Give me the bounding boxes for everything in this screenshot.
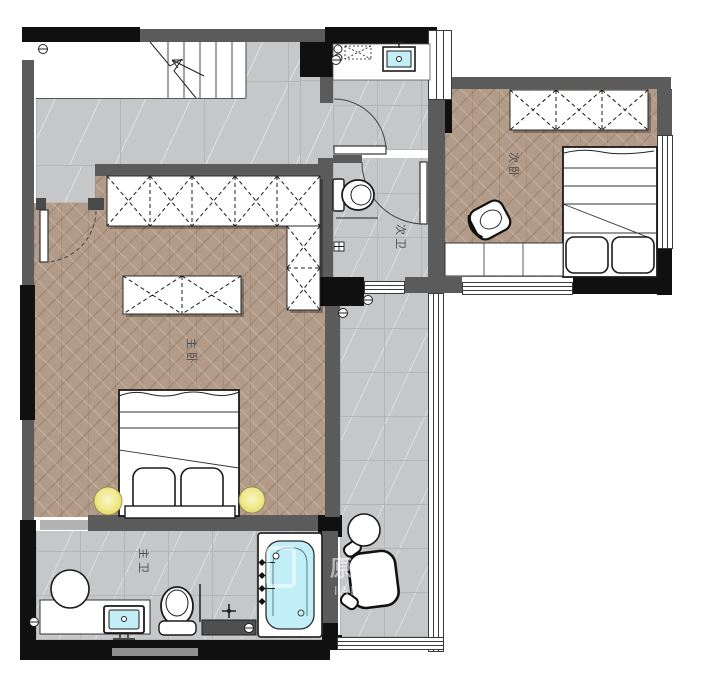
desk-cabinet	[445, 243, 563, 276]
single-bed	[563, 147, 657, 277]
laundry-door	[334, 99, 386, 154]
island-wardrobe	[123, 276, 244, 317]
floor-drain-symbol	[334, 242, 344, 251]
floor-plan: 主卧 主卫 次卧 次卫 原创 IALS	[0, 0, 720, 689]
desk-chair	[465, 197, 514, 243]
watermark-text-cn: 原创	[330, 556, 374, 581]
side-table	[348, 514, 380, 546]
shower-mixer	[200, 584, 256, 635]
nightstand-lamp	[94, 487, 122, 515]
staircase	[150, 42, 246, 98]
room-label-second-bedroom: 次卧	[507, 152, 521, 180]
watermark-text-en: IALS	[334, 583, 370, 598]
room-label-master-bedroom: 主卧	[185, 338, 198, 366]
room-label-master-bathroom: 主卫	[137, 548, 150, 576]
toilet	[159, 587, 196, 635]
master-bedroom-door	[40, 210, 96, 262]
double-bed	[119, 390, 239, 518]
wardrobe	[287, 226, 323, 313]
laundry-counter	[333, 43, 430, 80]
fixtures-overlay: 主卧 主卫 次卧 次卫 原创 IALS	[0, 0, 720, 689]
room-label-second-bathroom: 次卫	[394, 224, 408, 252]
vanity-stool	[51, 570, 89, 608]
wardrobe	[510, 90, 651, 133]
toilet	[333, 179, 378, 218]
wardrobe	[107, 176, 323, 229]
washbasin	[383, 43, 415, 71]
nightstand-lamp	[239, 487, 265, 513]
